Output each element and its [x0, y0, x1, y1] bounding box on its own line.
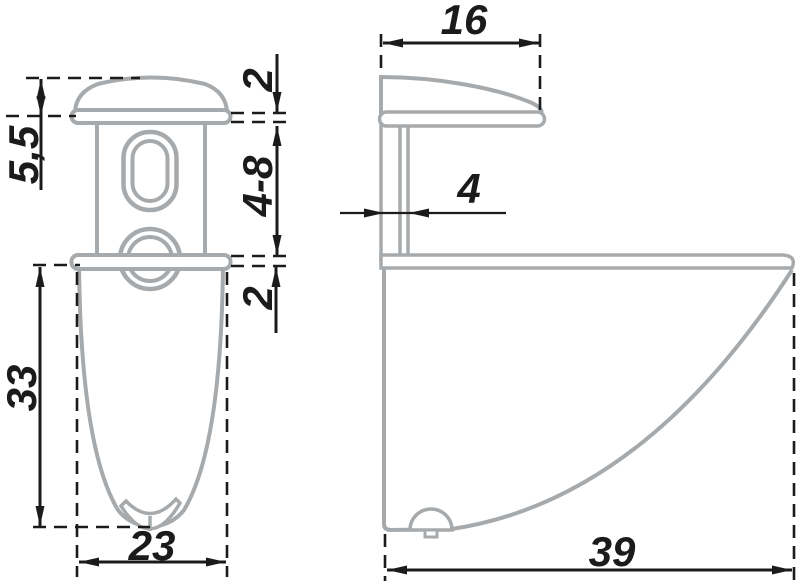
arrow-down-icon [37, 96, 46, 116]
dim-front-cap-height: 5,5 [0, 79, 47, 190]
arrow-left-icon [79, 558, 99, 567]
arrow-right-icon [519, 39, 539, 48]
dim-side-cap-depth: 16 [383, 0, 539, 48]
side-support-strip [381, 255, 793, 268]
dim-front-cap-rim-label: 2 [234, 68, 281, 92]
dim-side-pin-width: 4 [340, 165, 506, 218]
front-cap-rim [72, 110, 231, 123]
drawing-canvas: 5,5 2 4-8 2 33 [0, 0, 800, 583]
dim-front-cap-rim: 2 [234, 54, 282, 112]
dim-side-depth: 39 [387, 528, 792, 575]
dim-side-cap-depth-label: 16 [441, 0, 488, 43]
bottom-bump-notch [425, 530, 437, 537]
arrow-down-icon [273, 92, 282, 112]
arrow-right-icon [206, 558, 226, 567]
arrow-down-icon [273, 235, 282, 255]
front-base-rim [72, 255, 231, 269]
arrow-up-icon [272, 267, 281, 287]
technical-drawing: 5,5 2 4-8 2 33 [0, 0, 800, 583]
front-cap-dome [75, 78, 227, 113]
dim-side-pin-width-label: 4 [456, 165, 480, 212]
dim-side-depth-label: 39 [589, 528, 636, 575]
dim-front-base-rim-label: 2 [234, 286, 281, 310]
dim-front-body-length: 33 [0, 267, 45, 526]
dim-front-gap-label: 4-8 [234, 155, 281, 217]
dim-front-width-label: 23 [128, 522, 176, 569]
dim-front-cap-height-label: 5,5 [0, 125, 47, 184]
side-cap-rim [380, 112, 545, 126]
dim-front-body-length-label: 33 [0, 365, 45, 412]
arrow-down-icon [36, 506, 45, 526]
side-cap [381, 77, 542, 114]
arrow-up-icon [36, 267, 45, 287]
dim-front-width: 23 [79, 522, 226, 569]
side-stem [381, 125, 408, 260]
side-view [380, 77, 794, 537]
arrow-up-icon [273, 126, 282, 146]
dim-front-gap: 4-8 [234, 126, 282, 255]
arrow-left-icon [409, 209, 429, 218]
dim-front-base-rim: 2 [234, 267, 281, 333]
front-view [72, 78, 231, 532]
side-body-fill [384, 262, 792, 529]
arrow-left-icon [387, 566, 407, 575]
arrow-left-icon [383, 39, 403, 48]
front-cone [79, 266, 223, 527]
arrow-right-icon [772, 566, 792, 575]
